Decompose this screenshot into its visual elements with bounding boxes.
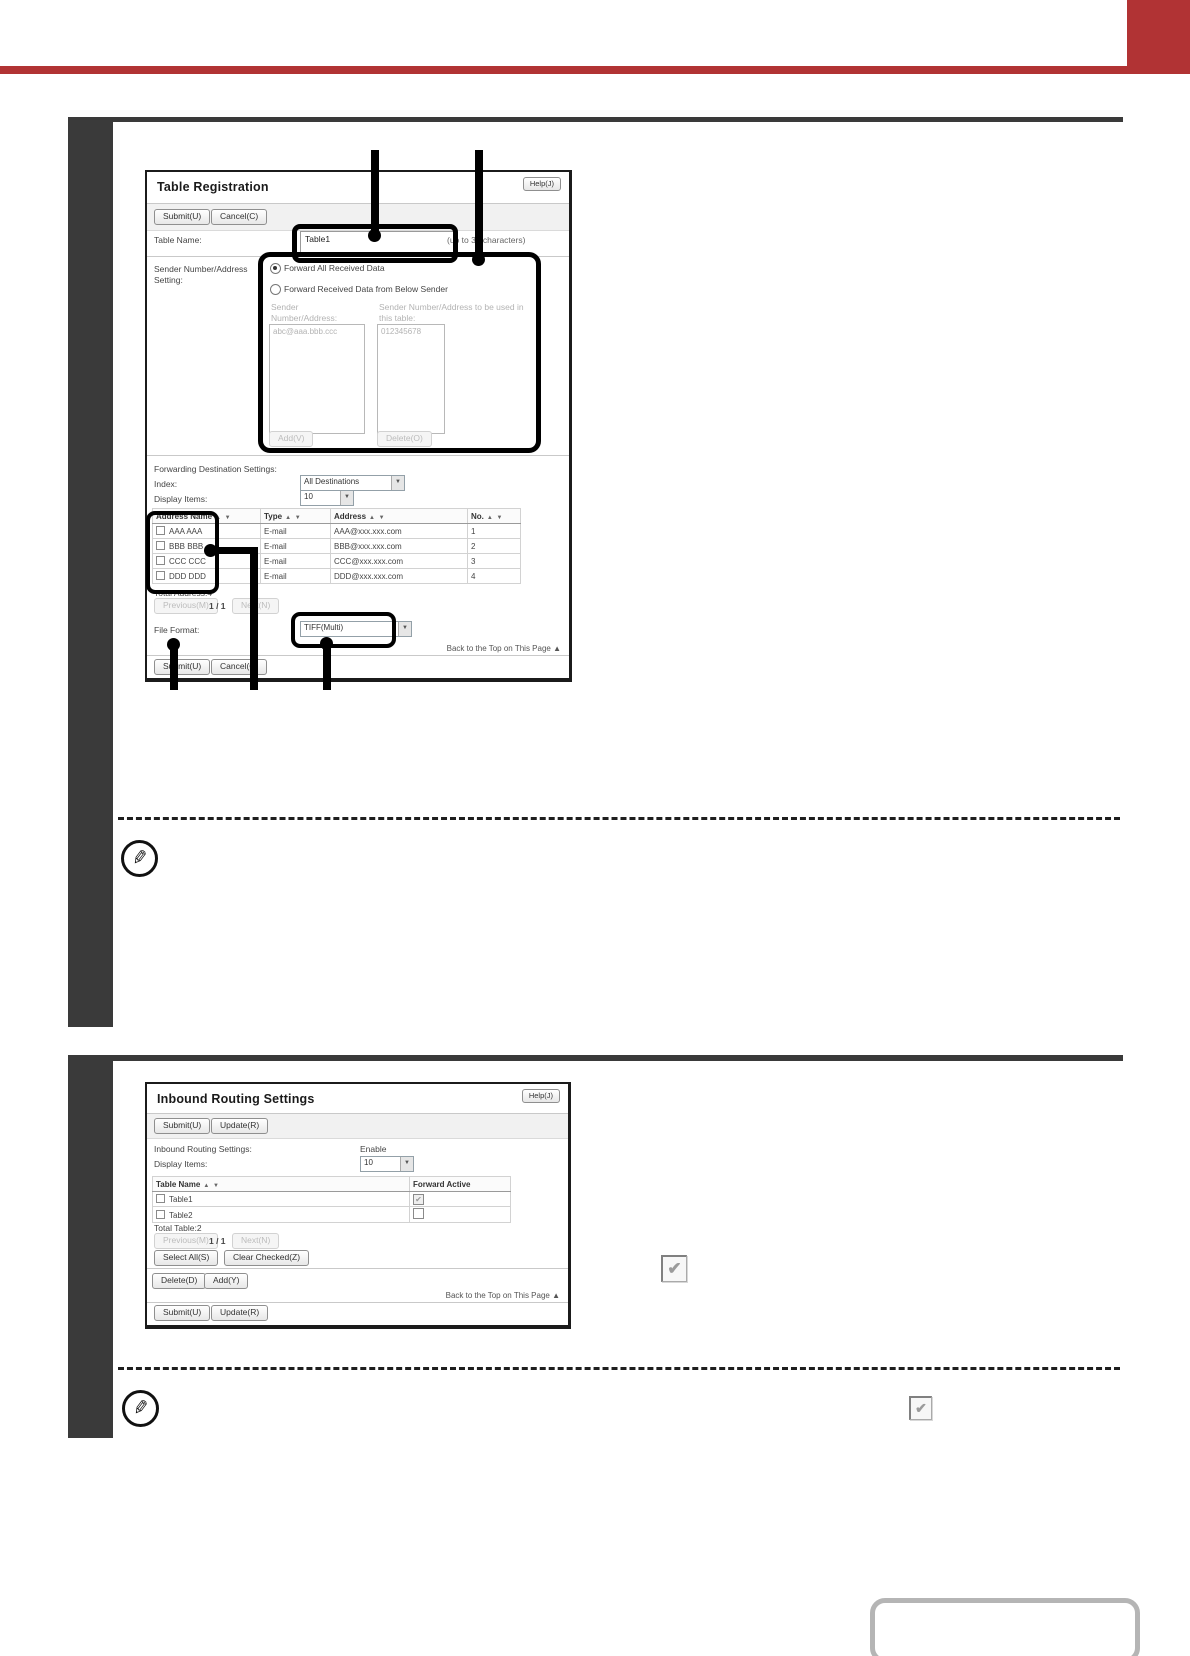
callout-box-file-format (291, 612, 396, 648)
select-all-button[interactable]: Select All(S) (154, 1250, 218, 1266)
col-no[interactable]: No.▲ ▼ (468, 509, 521, 524)
cancel-button-footer[interactable]: Cancel(C) (211, 659, 267, 675)
forward-active-checkbox-illustration: ✔ (909, 1396, 932, 1420)
submit-button-footer[interactable]: Submit(U) (154, 1305, 210, 1321)
submit-button[interactable]: Submit(U) (154, 209, 210, 225)
routing-table: Table Name▲ ▼ Forward Active Table1 ✔ Ta… (152, 1176, 511, 1223)
page-title: Table Registration (157, 180, 269, 194)
back-to-top-link[interactable]: Back to the Top on This Page ▲ (446, 1291, 560, 1300)
header-corner-block (1127, 0, 1190, 74)
col-type[interactable]: Type▲ ▼ (261, 509, 331, 524)
sort-icons[interactable]: ▲ ▼ (285, 515, 302, 521)
sender-setting-label: Sender Number/Address Setting: (154, 264, 262, 285)
note-divider (118, 817, 1120, 820)
page-indicator: 1 / 1 (209, 601, 226, 612)
note-divider (118, 1367, 1120, 1370)
inbound-routing-window: Inbound Routing Settings Help(J) Submit(… (145, 1082, 571, 1329)
callout-dot (167, 638, 180, 651)
callout-line-file-format (323, 643, 331, 690)
up-arrow-icon: ▲ (553, 644, 561, 653)
dropdown-arrow-icon[interactable]: ▼ (391, 476, 404, 490)
note-pencil-icon: ✎ (121, 840, 158, 877)
inbound-routing-label: Inbound Routing Settings: (154, 1144, 252, 1155)
forwarding-section-label: Forwarding Destination Settings: (154, 464, 277, 475)
next-button[interactable]: Next(N) (232, 1233, 279, 1249)
page-title: Inbound Routing Settings (157, 1092, 315, 1106)
update-button[interactable]: Update(R) (211, 1118, 268, 1134)
page-indicator: 1 / 1 (209, 1236, 226, 1247)
section1-top-rule (68, 117, 1123, 122)
forward-active-checkbox-illustration: ✔ (661, 1255, 687, 1282)
callout-box-sender (258, 252, 541, 453)
callout-dot (368, 229, 381, 242)
manual-page: Table Registration Help(J) Submit(U) Can… (0, 0, 1190, 1656)
add-button[interactable]: Add(Y) (204, 1273, 248, 1289)
dropdown-arrow-icon[interactable]: ▼ (340, 491, 353, 505)
delete-button[interactable]: Delete(D) (152, 1273, 206, 1289)
table-name-label: Table Name: (154, 235, 202, 246)
display-items-select[interactable]: 10▼ (360, 1156, 414, 1172)
table-name-hint: (up to 36 characters) (447, 235, 525, 246)
callout-dot (472, 253, 485, 266)
display-items-label: Display Items: (154, 494, 207, 505)
row-checkbox[interactable] (156, 1194, 165, 1203)
col-address[interactable]: Address▲ ▼ (331, 509, 468, 524)
sort-icons[interactable]: ▲ ▼ (369, 515, 386, 521)
callout-line-table-name (371, 150, 379, 234)
callout-dot (204, 544, 217, 557)
note-pencil-icon: ✎ (122, 1390, 159, 1427)
callout-dot (320, 637, 333, 650)
sort-icons[interactable]: ▲ ▼ (487, 515, 504, 521)
col-forward-active: Forward Active (410, 1177, 511, 1192)
clear-checked-button[interactable]: Clear Checked(Z) (224, 1250, 309, 1266)
callout-line-sender (475, 150, 483, 260)
sort-icons[interactable]: ▲ ▼ (203, 1183, 220, 1189)
back-to-top-link[interactable]: Back to the Top on This Page ▲ (447, 644, 561, 653)
submit-button[interactable]: Submit(U) (154, 1118, 210, 1134)
update-button-footer[interactable]: Update(R) (211, 1305, 268, 1321)
step-bar-1 (68, 117, 113, 1027)
up-arrow-icon: ▲ (552, 1291, 560, 1300)
submit-button-footer[interactable]: Submit(U) (154, 659, 210, 675)
cancel-button[interactable]: Cancel(C) (211, 209, 267, 225)
contents-link-box[interactable] (870, 1598, 1140, 1656)
inbound-routing-value: Enable (360, 1144, 386, 1155)
display-items-select[interactable]: 10▼ (300, 490, 354, 506)
header-red-rule (0, 66, 1190, 74)
callout-line-checkboxes (250, 547, 258, 690)
index-select[interactable]: All Destinations▼ (300, 475, 405, 491)
dropdown-arrow-icon[interactable]: ▼ (400, 1157, 413, 1171)
dropdown-arrow-icon[interactable]: ▼ (398, 622, 411, 636)
table-row: Table1 ✔ (153, 1192, 511, 1207)
step-bar-2 (68, 1055, 113, 1438)
col-table-name[interactable]: Table Name▲ ▼ (153, 1177, 410, 1192)
section2-top-rule (68, 1055, 1123, 1061)
help-button[interactable]: Help(J) (523, 177, 561, 191)
forward-active-checkbox-checked[interactable]: ✔ (413, 1194, 424, 1205)
help-button[interactable]: Help(J) (522, 1089, 560, 1103)
forward-active-checkbox-unchecked[interactable] (413, 1208, 424, 1219)
row-checkbox[interactable] (156, 1210, 165, 1219)
table-header-row: Table Name▲ ▼ Forward Active (153, 1177, 511, 1192)
file-format-label: File Format: (154, 625, 199, 636)
display-items-label: Display Items: (154, 1159, 207, 1170)
table-row: Table2 (153, 1207, 511, 1223)
index-label: Index: (154, 479, 177, 490)
